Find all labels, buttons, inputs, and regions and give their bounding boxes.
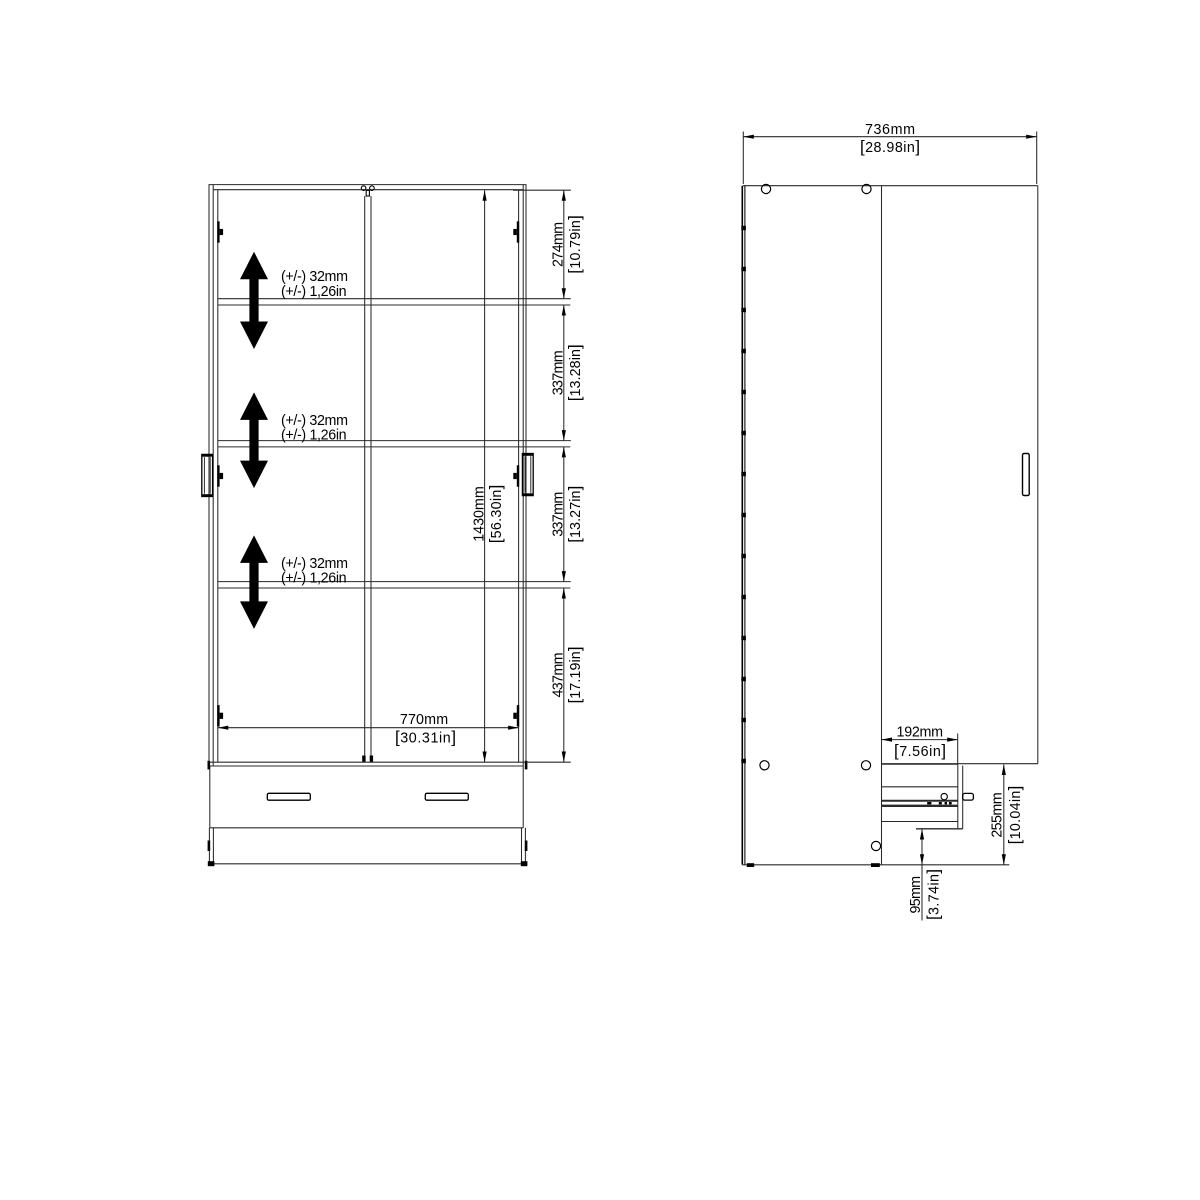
svg-text:[17.19in]: [17.19in] — [565, 647, 584, 704]
svg-text:[10.04in]: [10.04in] — [1005, 786, 1024, 845]
svg-text:1430mm: 1430mm — [471, 486, 487, 542]
svg-text:337mm: 337mm — [550, 492, 566, 537]
svg-text:[3.74in]: [3.74in] — [924, 869, 943, 920]
svg-text:[28.98in]: [28.98in] — [860, 137, 920, 156]
svg-text:[7.56in]: [7.56in] — [894, 741, 946, 760]
svg-text:770mm: 770mm — [400, 712, 448, 728]
svg-text:192mm: 192mm — [897, 724, 944, 740]
svg-text:(+/-) 32mm: (+/-) 32mm — [281, 556, 348, 572]
svg-text:[10.79in]: [10.79in] — [565, 215, 584, 274]
svg-text:255mm: 255mm — [990, 792, 1006, 837]
svg-text:(+/-) 1,26in: (+/-) 1,26in — [281, 571, 347, 587]
svg-text:(+/-) 1,26in: (+/-) 1,26in — [281, 428, 347, 444]
svg-text:(+/-) 32mm: (+/-) 32mm — [281, 413, 348, 429]
svg-text:[13.27in]: [13.27in] — [565, 486, 584, 543]
svg-text:[13.28in]: [13.28in] — [565, 344, 584, 401]
svg-text:[30.31in]: [30.31in] — [395, 727, 456, 746]
svg-text:736mm: 736mm — [865, 122, 915, 138]
svg-text:437mm: 437mm — [550, 653, 566, 698]
svg-text:(+/-) 1,26in: (+/-) 1,26in — [281, 284, 347, 300]
svg-text:95mm: 95mm — [908, 876, 924, 914]
svg-text:274mm: 274mm — [550, 222, 566, 267]
svg-text:[56.30in]: [56.30in] — [486, 485, 505, 544]
svg-text:(+/-) 32mm: (+/-) 32mm — [281, 269, 348, 285]
svg-text:337mm: 337mm — [550, 350, 566, 395]
